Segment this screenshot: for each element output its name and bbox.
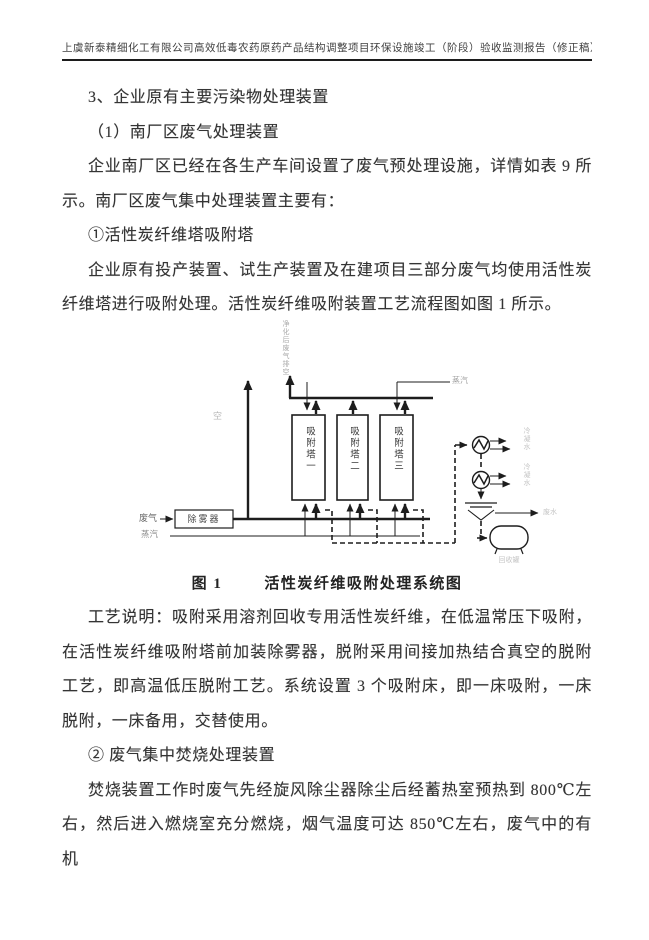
wastewater-label: 废水 <box>543 507 557 517</box>
tower3-label: 吸附塔三 <box>390 426 404 472</box>
tower2-desorb-line <box>368 510 377 543</box>
figure-caption-title: 活性炭纤维吸附处理系统图 <box>264 576 462 592</box>
steam-top-label: 蒸汽 <box>452 375 468 386</box>
paragraph-process-description: 工艺说明：吸附采用溶剂回收专用活性炭纤维，在低温常压下吸附，在活性炭纤维吸附塔前… <box>62 601 592 739</box>
process-flow-diagram <box>105 317 575 567</box>
document-header-title: 上虞新泰精细化工有限公司高效低毒农药原药产品结构调整项目环保设施竣工（阶段）验收… <box>62 40 592 61</box>
condenser-2-coil-icon <box>474 475 488 484</box>
demister-label: 除雾器 <box>175 510 233 528</box>
vent-label: 空 <box>213 409 222 422</box>
condensate1-label: 冷凝水 <box>522 427 532 451</box>
heading-acf-tower: ①活性炭纤维塔吸附塔 <box>62 219 592 254</box>
condensate2-label: 冷凝水 <box>522 463 532 487</box>
recovery-tank <box>490 526 528 549</box>
paragraph-acf-usage: 企业原有投产装置、试生产装置及在建项目三部分废气均使用活性炭纤维塔进行吸附处理。… <box>62 254 592 323</box>
condenser-1-coil-icon <box>474 440 488 449</box>
tank-legs <box>495 549 523 554</box>
body-text-lower: 工艺说明：吸附采用溶剂回收专用活性炭纤维，在低温常压下吸附，在活性炭纤维吸附塔前… <box>62 601 592 877</box>
body-text: 3、企业原有主要污染物处理装置 （1）南厂区废气处理装置 企业南厂区已经在各生产… <box>62 81 592 323</box>
paragraph-incineration: 焚烧装置工作时废气先经旋风除尘器除尘后经蓄热室预热到 800℃左右，然后进入燃烧… <box>62 774 592 878</box>
tower1-desorb-line <box>325 510 332 543</box>
scanned-report-page: { "header": { "title": "上虞新泰精细化工有限公司高效低毒… <box>0 40 649 940</box>
recovery-tank-label: 回收罐 <box>488 555 530 565</box>
separator-funnel <box>468 510 494 520</box>
heading-south-area: （1）南厂区废气处理装置 <box>62 116 592 151</box>
tower1-label: 吸附塔一 <box>302 426 316 472</box>
page: 上虞新泰精细化工有限公司高效低毒农药原药产品结构调整项目环保设施竣工（阶段）验收… <box>0 40 649 877</box>
waste-gas-inlet-label: 废气 <box>139 511 157 524</box>
figure-caption-number: 图 1 <box>192 576 223 592</box>
tower3-desorb-line <box>413 510 423 543</box>
tower2-label: 吸附塔二 <box>346 426 360 472</box>
paragraph-pretreatment: 企业南厂区已经在各生产车间设置了废气预处理设施，详情如表 9 所示。南厂区废气集… <box>62 150 592 219</box>
heading-section-3: 3、企业原有主要污染物处理装置 <box>62 81 592 116</box>
figure-caption: 图 1活性炭纤维吸附处理系统图 <box>62 567 592 602</box>
stack-vent-label: 净化后废气排空 <box>281 320 291 378</box>
steam-bottom-label: 蒸汽 <box>141 528 158 540</box>
process-flow-figure: 净化后废气排空 空 蒸汽 废气 蒸汽 除雾器 吸附塔一 吸附塔二 吸附塔三 冷凝… <box>105 317 575 567</box>
heading-incineration: ② 废气集中焚烧处理装置 <box>62 739 592 774</box>
